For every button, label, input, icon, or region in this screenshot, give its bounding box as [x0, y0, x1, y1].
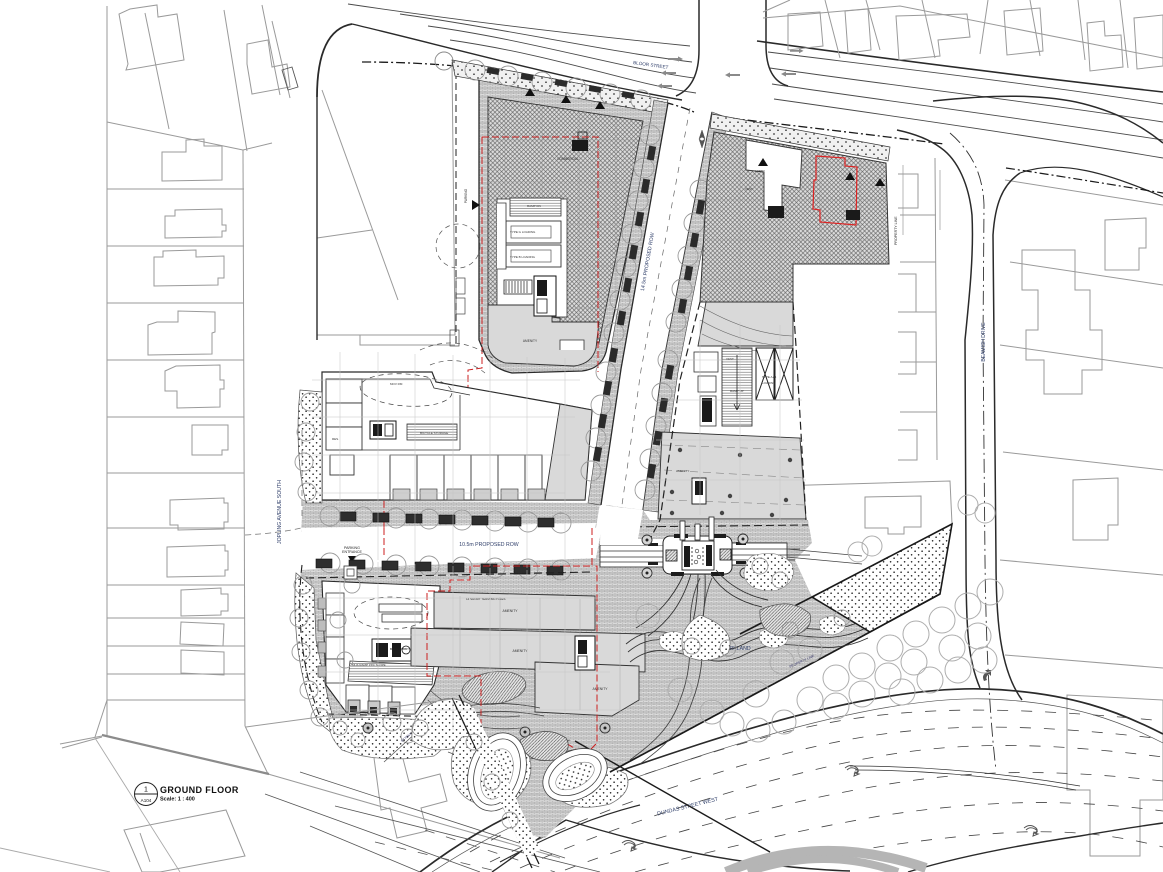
- svg-text:10.5m PROPOSED ROW: 10.5m PROPOSED ROW: [459, 542, 518, 548]
- svg-text:14 SHORT TERM BICYCLES: 14 SHORT TERM BICYCLES: [466, 597, 506, 601]
- svg-text:VEST: VEST: [726, 357, 734, 361]
- svg-text:ENTRANCE: ENTRANCE: [342, 550, 362, 554]
- svg-text:AMENITY: AMENITY: [676, 469, 689, 473]
- svg-text:JOPLING AVENUE SOUTH: JOPLING AVENUE SOUTH: [277, 480, 283, 544]
- svg-text:TYPE A+B: TYPE A+B: [762, 375, 776, 379]
- svg-text:AMENITY: AMENITY: [512, 649, 528, 653]
- svg-text:Scale: 1 : 400: Scale: 1 : 400: [160, 797, 195, 803]
- svg-text:RES.: RES.: [332, 437, 339, 441]
- svg-text:A104: A104: [141, 798, 152, 803]
- svg-text:AMENITY: AMENITY: [592, 687, 608, 691]
- svg-text:MUA RAMP 15% SLOPE: MUA RAMP 15% SLOPE: [352, 663, 386, 667]
- svg-text:RAMP UP: RAMP UP: [730, 389, 744, 393]
- svg-text:BEAMISH DRIVE: BEAMISH DRIVE: [981, 322, 987, 362]
- svg-text:TYPE G LOADING: TYPE G LOADING: [510, 230, 536, 234]
- svg-text:LOBBY: LOBBY: [755, 169, 765, 173]
- svg-text:BLDG LOBBY: BLDG LOBBY: [390, 647, 409, 651]
- svg-text:VEST: VEST: [745, 187, 753, 191]
- svg-text:COMMERCIAL: COMMERCIAL: [557, 157, 579, 161]
- svg-text:PARKING: PARKING: [464, 188, 468, 203]
- svg-text:GROUND FLOOR: GROUND FLOOR: [160, 785, 239, 795]
- svg-text:LOADING: LOADING: [762, 381, 776, 385]
- svg-text:AMENITY: AMENITY: [502, 609, 518, 613]
- svg-text:AMENITY: AMENITY: [523, 339, 538, 343]
- svg-text:PROPERTY LINE: PROPERTY LINE: [894, 216, 898, 245]
- svg-text:BICYCLE STORAGE: BICYCLE STORAGE: [420, 431, 448, 435]
- svg-text:TYPE B LOADING: TYPE B LOADING: [510, 255, 536, 259]
- svg-text:1: 1: [144, 787, 148, 794]
- svg-text:MOV RM: MOV RM: [390, 382, 403, 386]
- svg-text:RAMP DN: RAMP DN: [527, 204, 541, 208]
